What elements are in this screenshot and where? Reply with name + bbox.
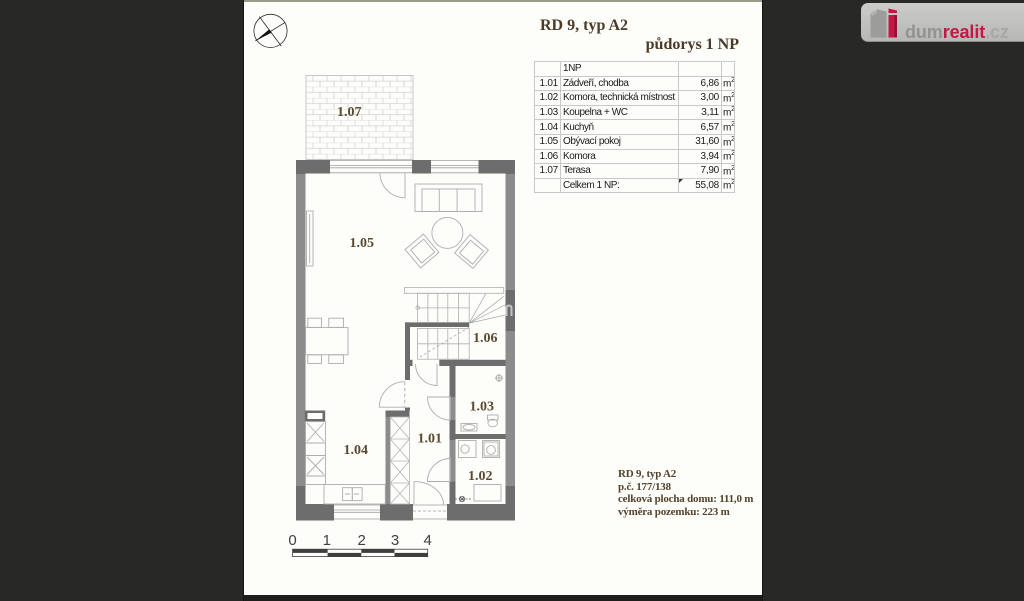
svg-text:1.05: 1.05 bbox=[350, 236, 375, 251]
svg-text:1: 1 bbox=[323, 532, 331, 549]
svg-text:1.07: 1.07 bbox=[337, 105, 362, 120]
svg-text:1.03: 1.03 bbox=[470, 400, 495, 415]
svg-text:4: 4 bbox=[424, 532, 432, 549]
svg-text:3: 3 bbox=[391, 532, 399, 549]
svg-text:1.06: 1.06 bbox=[473, 331, 498, 346]
svg-text:1.04: 1.04 bbox=[344, 443, 369, 458]
svg-text:1.02: 1.02 bbox=[468, 469, 493, 484]
svg-text:0: 0 bbox=[288, 532, 296, 549]
svg-text:2: 2 bbox=[358, 532, 366, 549]
svg-text:1.01: 1.01 bbox=[418, 432, 443, 447]
